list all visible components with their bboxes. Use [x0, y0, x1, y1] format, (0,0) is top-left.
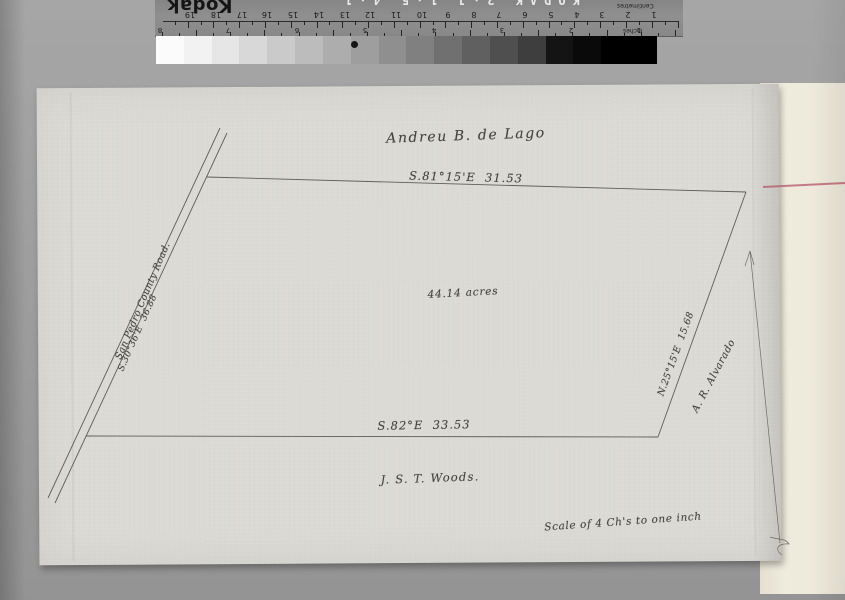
ruler-cm-tick	[471, 21, 472, 28]
ruler-cm-number: 7	[493, 10, 505, 19]
ruler-baseline	[163, 21, 679, 22]
ruler-cm-tick	[587, 21, 588, 25]
ruler-inch-number: 6	[292, 26, 302, 34]
ruler-cm-number: 8	[468, 10, 480, 19]
film-edge-text: KODAK 2·J 1·5 4·1	[338, 0, 580, 7]
ruler-inch-number: 3	[497, 26, 507, 34]
gray-step	[546, 36, 574, 64]
ruler-cm-tick	[188, 21, 189, 28]
gray-step	[156, 36, 184, 64]
ruler-cm-tick	[678, 21, 679, 28]
kodak-ruler: Kodak KODAK 2·J 1·5 4·1 Centimetres Inch…	[155, 0, 683, 37]
ruler-cm-number: 2	[622, 10, 634, 19]
paper-crease	[70, 92, 75, 561]
ruler-inch-number: 7	[223, 26, 233, 34]
gray-step	[629, 36, 657, 64]
wedge-dot	[351, 41, 358, 48]
map-sheet	[37, 84, 782, 566]
ruler-cm-tick	[510, 21, 511, 25]
ruler-cm-tick	[420, 21, 421, 28]
ruler-cm-tick	[458, 21, 459, 25]
gray-step	[323, 36, 351, 64]
ruler-cm-tick	[523, 21, 524, 28]
ruler-cm-tick	[639, 21, 640, 25]
ruler-cm-number: 18	[210, 10, 222, 19]
centimetres-label: Centimetres	[617, 2, 654, 9]
ruler-cm-number: 5	[545, 10, 557, 19]
ruler-cm-number: 15	[287, 10, 299, 19]
ruler-cm-number: 4	[571, 10, 583, 19]
ruler-cm-tick	[201, 21, 202, 25]
ruler-cm-number: 1	[648, 10, 660, 19]
ruler-cm-tick	[175, 21, 176, 25]
ruler-cm-tick	[381, 21, 382, 25]
ruler-cm-tick	[561, 21, 562, 25]
ruler-inch-number: 2	[566, 26, 576, 34]
gray-step	[490, 36, 518, 64]
ruler-cm-number: 3	[596, 10, 608, 19]
ruler-cm-tick	[407, 21, 408, 25]
gray-step	[573, 36, 601, 64]
ruler-cm-tick	[652, 21, 653, 28]
ruler-cm-tick	[394, 21, 395, 28]
ruler-inch-number: 4	[429, 26, 439, 34]
ruler-cm-tick	[213, 21, 214, 28]
gray-step	[601, 36, 629, 64]
paper-crease	[752, 88, 757, 557]
gray-step	[379, 36, 407, 64]
gray-step	[212, 36, 240, 64]
ruler-cm-number: 17	[236, 10, 248, 19]
ruler-cm-tick	[600, 21, 601, 28]
ruler-cm-number: 14	[313, 10, 325, 19]
ruler-cm-number: 12	[364, 10, 376, 19]
ruler-cm-tick	[265, 21, 266, 28]
ruler-inch-number: 1	[634, 26, 644, 34]
ruler-cm-tick	[304, 21, 305, 25]
ruler-cm-number: 16	[261, 10, 273, 19]
ruler-cm-number: 9	[442, 10, 454, 19]
ruler-cm-tick	[226, 21, 227, 25]
gray-step	[239, 36, 267, 64]
grayscale-wedge	[156, 36, 657, 64]
ruler-cm-tick	[665, 21, 666, 25]
ruler-cm-tick	[445, 21, 446, 28]
gray-step	[295, 36, 323, 64]
gray-step	[434, 36, 462, 64]
ruler-cm-tick	[536, 21, 537, 25]
ruler-cm-tick	[329, 21, 330, 25]
gray-step	[406, 36, 434, 64]
ruler-cm-number: 10	[416, 10, 428, 19]
ruler-cm-tick	[549, 21, 550, 28]
ruler-cm-tick	[278, 21, 279, 25]
ruler-cm-tick	[613, 21, 614, 25]
ruler-cm-tick	[626, 21, 627, 28]
ruler-cm-tick	[342, 21, 343, 28]
ruler-cm-tick	[484, 21, 485, 25]
gray-step	[462, 36, 490, 64]
gray-step	[184, 36, 212, 64]
ruler-cm-tick	[433, 21, 434, 25]
ruler-cm-tick	[317, 21, 318, 28]
ruler-inch-tick	[675, 30, 676, 36]
gray-step	[267, 36, 295, 64]
ruler-cm-number: 6	[519, 10, 531, 19]
ruler-inch-number: 5	[360, 26, 370, 34]
ruler-cm-tick	[252, 21, 253, 25]
ruler-cm-number: 19	[184, 10, 196, 19]
kodak-logo: Kodak	[167, 0, 233, 16]
scanned-page: Kodak KODAK 2·J 1·5 4·1 Centimetres Inch…	[0, 0, 845, 600]
ruler-cm-number: 11	[390, 10, 402, 19]
ruler-cm-tick	[355, 21, 356, 25]
gray-step	[518, 36, 546, 64]
ruler-cm-number: 13	[339, 10, 351, 19]
ruler-inch-tick	[658, 33, 659, 36]
ruler-cm-tick	[239, 21, 240, 28]
ruler-inch-number: 8	[155, 26, 165, 34]
